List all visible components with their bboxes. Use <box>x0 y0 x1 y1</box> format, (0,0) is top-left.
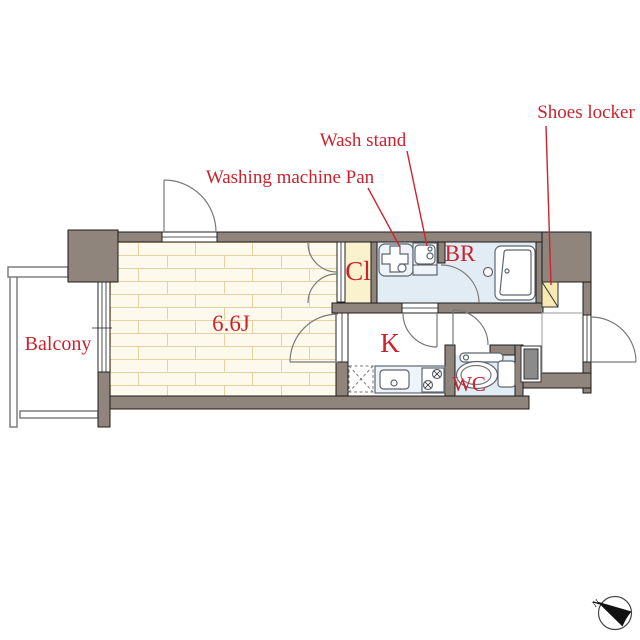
balcony-window <box>98 282 110 372</box>
floorplan-canvas: Shoes locker Wash stand Washing machine … <box>0 0 640 640</box>
bathroom-door-gap-floor <box>438 263 445 303</box>
entry-step-lines <box>542 307 583 373</box>
annotation-washing-machine-pan: Washing machine Pan <box>206 167 375 188</box>
bathroom-label: BR <box>445 241 476 266</box>
wash-stand <box>413 243 437 275</box>
annotation-wash-stand: Wash stand <box>320 130 407 151</box>
closet-label: Cl <box>345 256 371 286</box>
kitchen-counter <box>375 366 445 393</box>
washing-machine-pan <box>379 244 413 276</box>
wc-label: WC <box>452 372 486 396</box>
kitchen-label: K <box>380 328 400 358</box>
shoes-locker-box <box>542 282 558 307</box>
washroom-door <box>403 313 437 347</box>
pipe-space <box>521 346 541 382</box>
entrance-door <box>591 317 636 362</box>
compass: N <box>590 597 631 630</box>
main-room-area-label: 6.6J <box>212 311 250 336</box>
balcony-label: Balcony <box>25 333 92 355</box>
annotation-shoes-locker: Shoes locker <box>537 102 635 123</box>
floorplan-drawing: Shoes locker Wash stand Washing machine … <box>0 0 640 640</box>
wc-door <box>453 310 488 345</box>
fridge-space <box>349 366 373 392</box>
